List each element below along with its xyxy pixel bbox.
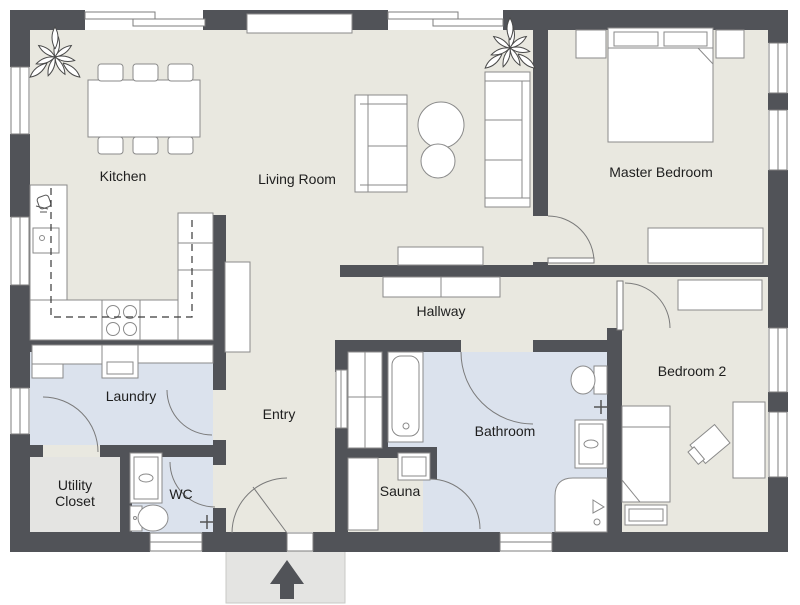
wall-closet-tub-divider	[382, 352, 388, 448]
bathroom-closet	[348, 352, 382, 448]
floor-plan-canvas: Kitchen Living Room Master Bedroom Hallw…	[0, 0, 800, 605]
wall-laundry-east-a	[213, 352, 226, 390]
window-kitchen-left-2	[11, 217, 29, 285]
toilet	[571, 366, 607, 394]
wall-kitchen-entry	[213, 215, 226, 345]
dining-chair	[168, 64, 193, 81]
label-living-room: Living Room	[258, 171, 336, 187]
drain-icon	[594, 519, 600, 525]
label-hallway: Hallway	[416, 303, 465, 319]
desk	[733, 402, 765, 478]
bedroom2-bed	[622, 406, 670, 502]
window-master-right-1	[769, 43, 787, 93]
wall-entry-east-b	[335, 428, 348, 533]
label-wc: WC	[169, 486, 192, 502]
wall-bathroom-bedroom2	[607, 328, 622, 532]
dining-table	[88, 80, 200, 137]
kitchen-counter-right	[178, 213, 213, 340]
wall-right-4	[768, 392, 788, 412]
drain-icon	[403, 423, 409, 429]
front-door-threshold	[287, 533, 313, 551]
label-kitchen: Kitchen	[100, 168, 147, 184]
master-bed	[608, 28, 713, 142]
label-bedroom2: Bedroom 2	[658, 363, 727, 379]
window-kitchen-top	[85, 12, 205, 26]
window-wc-bottom	[150, 533, 202, 551]
window-kitchen-left-1	[11, 67, 29, 134]
sideboard-hallway-side	[383, 277, 500, 297]
burner-icon	[107, 323, 120, 336]
window-master-right-2	[769, 110, 787, 170]
sauna-heater	[398, 453, 430, 480]
entry-furniture	[225, 262, 250, 352]
coffee-table-round	[418, 102, 464, 148]
sofa	[485, 72, 530, 207]
loveseat	[355, 95, 407, 192]
wall-bottom-2	[202, 532, 287, 552]
sink-drain-icon	[40, 236, 45, 241]
wall-left-1	[10, 10, 30, 67]
wall-left-3	[10, 285, 30, 388]
wc-sink	[130, 453, 162, 503]
bathroom-sink	[575, 420, 607, 468]
wc-toilet	[130, 505, 168, 531]
dining-chair	[168, 137, 193, 154]
laundry-cabinet-right	[138, 345, 213, 363]
label-utility-line1: Utility	[58, 477, 92, 493]
burner-icon	[124, 323, 137, 336]
label-laundry: Laundry	[106, 388, 157, 404]
floor-plan: Kitchen Living Room Master Bedroom Hallw…	[0, 0, 800, 605]
sideboard-living-side	[398, 247, 483, 265]
nightstand-left	[576, 30, 606, 58]
label-sauna: Sauna	[380, 483, 421, 499]
wall-bathroom-north-a	[335, 340, 461, 352]
kitchen-sink	[33, 228, 59, 253]
wall-utility-north-a	[30, 445, 43, 457]
entry-wall-niche	[336, 370, 347, 428]
bedroom2-dresser	[678, 280, 762, 310]
label-master-bedroom: Master Bedroom	[609, 164, 712, 180]
wall-bottom-3	[313, 532, 500, 552]
nightstand-right	[716, 30, 744, 58]
master-dresser	[648, 228, 763, 263]
wall-bottom-4	[552, 532, 788, 552]
label-utility-line2: Closet	[55, 493, 95, 509]
wall-living-hallway	[340, 265, 548, 277]
wall-right-3	[768, 170, 788, 328]
washer	[102, 345, 138, 378]
dining-chair	[98, 137, 123, 154]
sauna-bench	[348, 458, 378, 530]
wall-living-master-stub	[533, 262, 548, 277]
dining-chair	[98, 64, 123, 81]
wall-living-master	[533, 10, 548, 216]
window-laundry-left	[11, 388, 29, 434]
coffee-table-round-small	[421, 144, 455, 178]
bedroom2-chest	[625, 505, 667, 525]
dining-chair	[133, 137, 158, 154]
wall-right-1	[768, 10, 788, 43]
label-entry: Entry	[263, 406, 296, 422]
wall-master-south	[548, 265, 788, 277]
wall-bottom-1	[10, 532, 150, 552]
window-bathroom-bottom	[500, 533, 552, 551]
wall-wc-east-b	[213, 508, 226, 533]
label-bathroom: Bathroom	[475, 423, 536, 439]
dining-chair	[133, 64, 158, 81]
bathtub	[388, 352, 423, 442]
wall-left-2	[10, 134, 30, 217]
window-living-top	[388, 12, 503, 26]
shower	[555, 478, 607, 532]
laundry-cabinet-small	[32, 364, 63, 378]
laundry-cabinet-left	[32, 345, 102, 364]
window-bedroom2-right-1	[769, 328, 787, 392]
entry-wardrobe	[225, 262, 250, 352]
window-bedroom2-right-2	[769, 412, 787, 477]
wall-right-2	[768, 93, 788, 110]
wall-bathroom-north-b	[533, 340, 607, 352]
sideboard-top	[247, 14, 352, 33]
